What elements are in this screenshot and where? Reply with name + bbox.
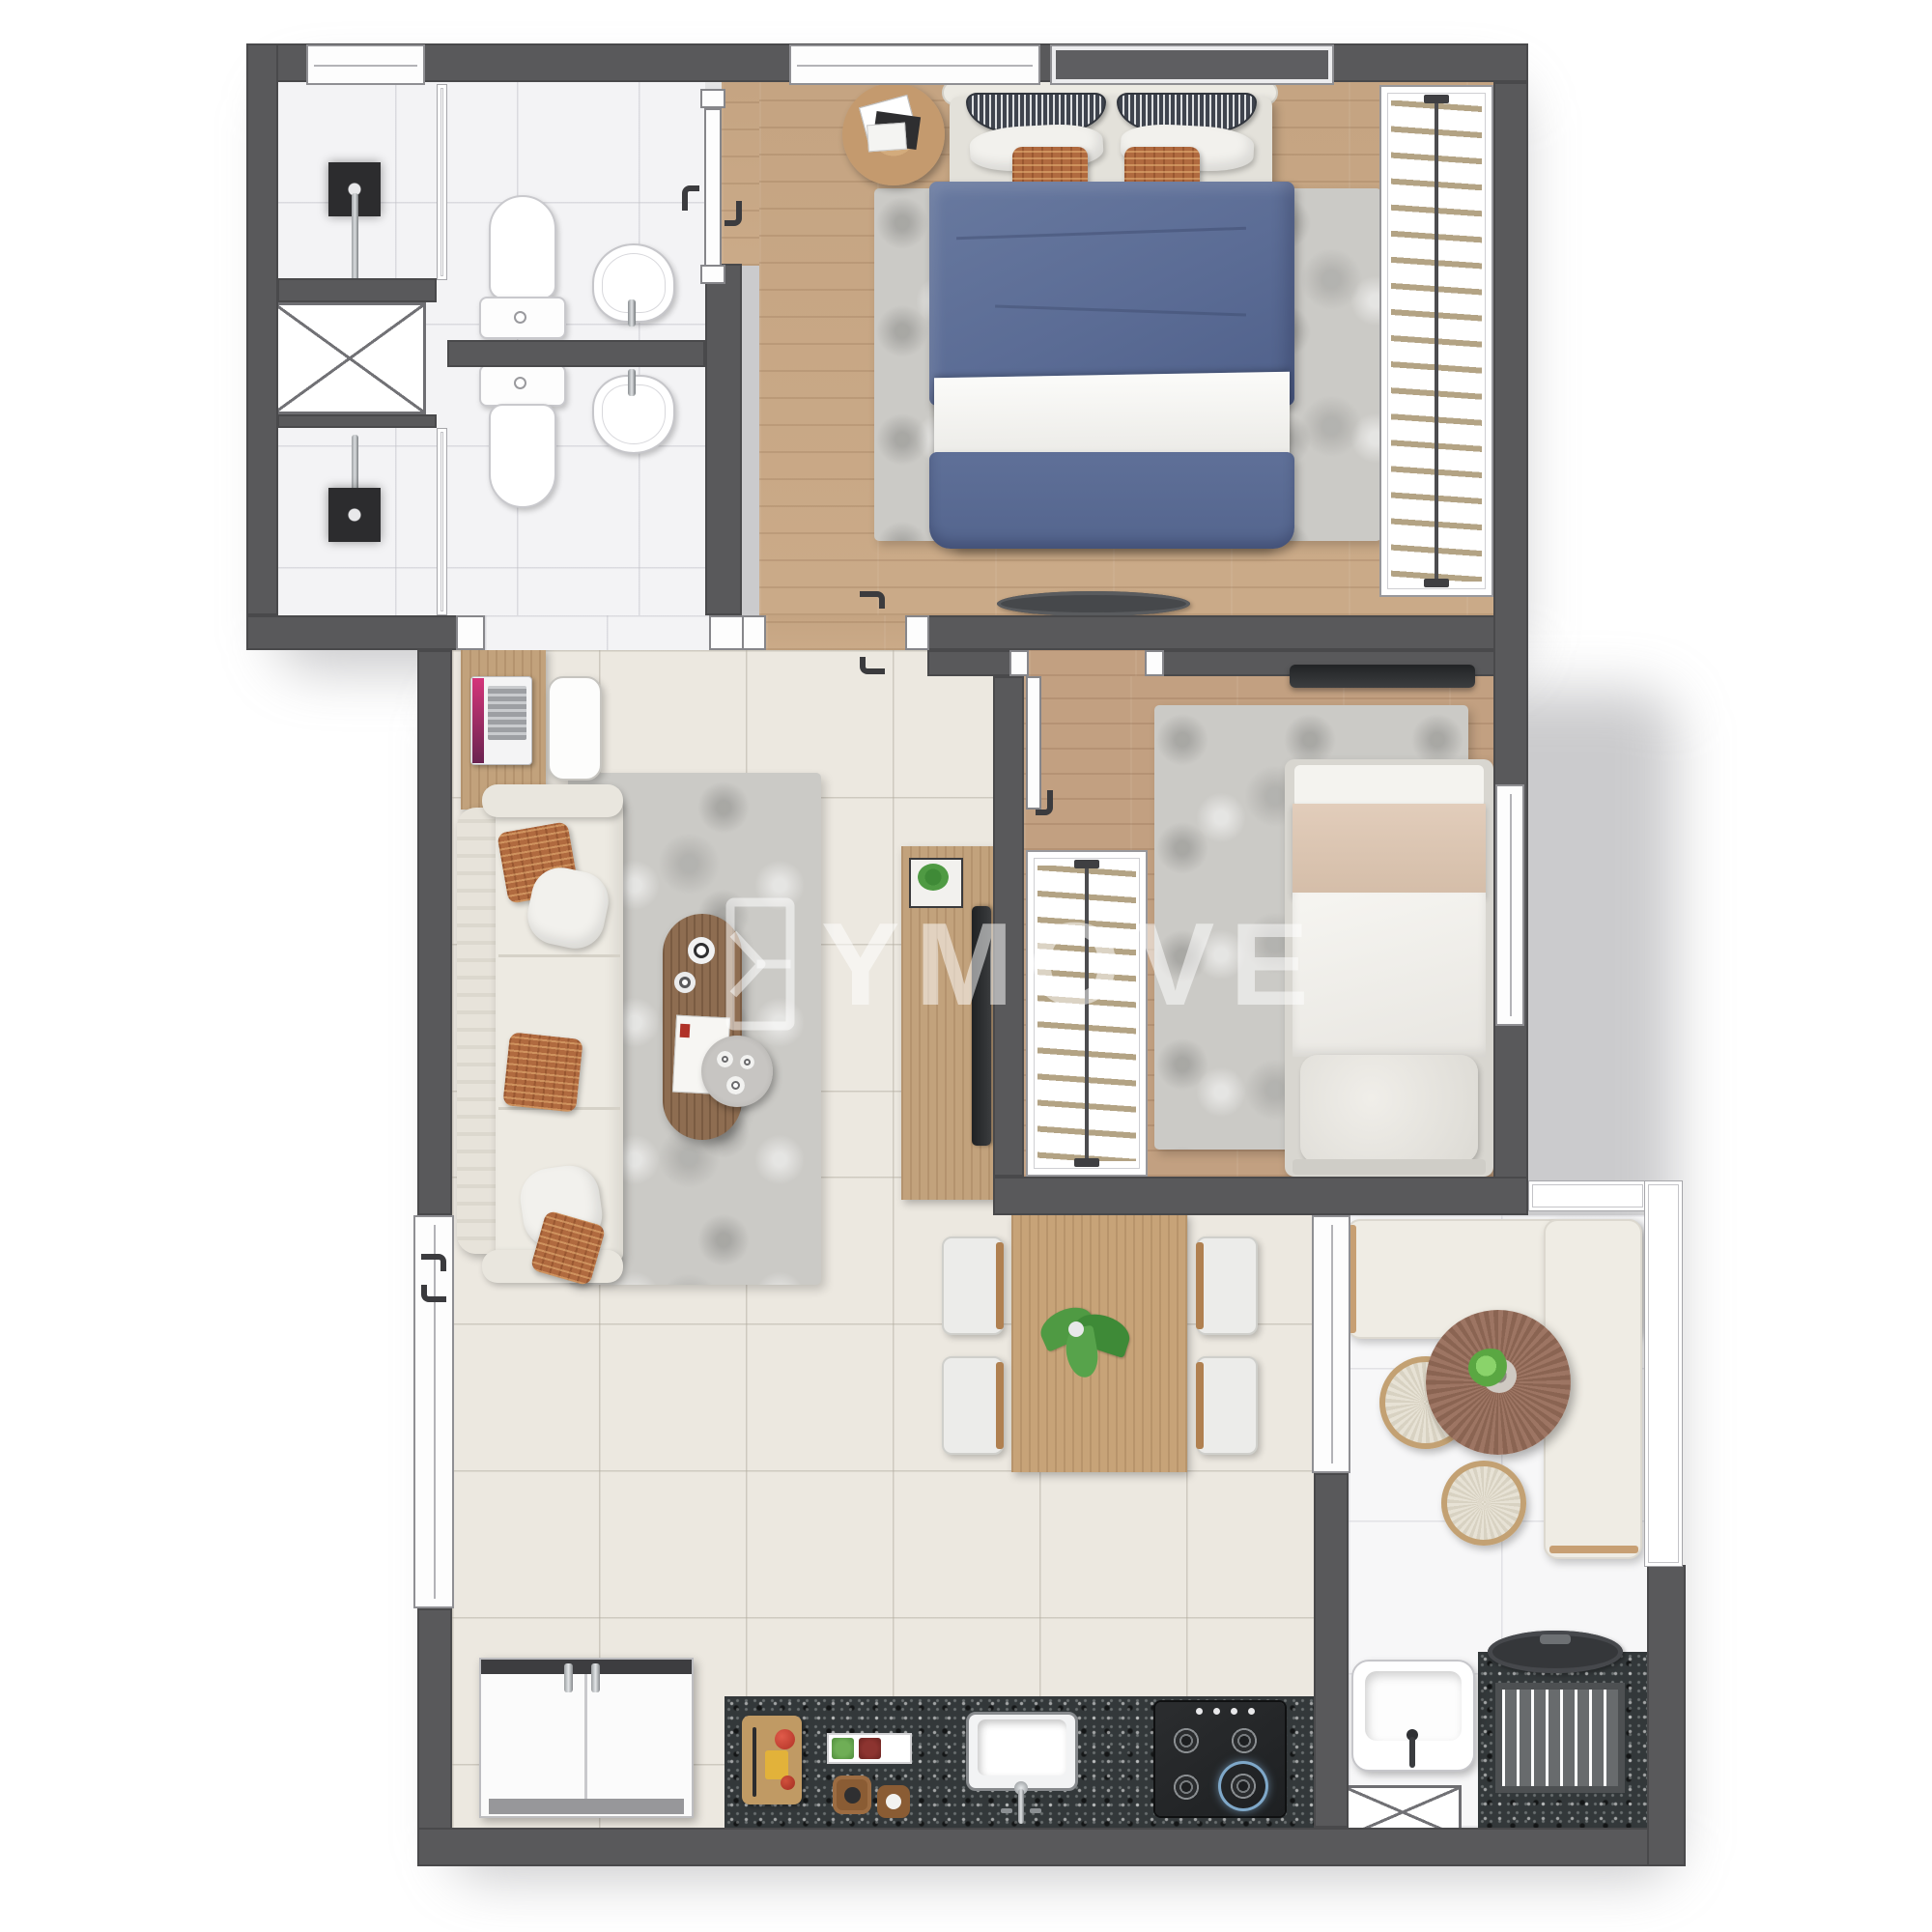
chair-wood-trim	[996, 1242, 1004, 1329]
tomato	[775, 1729, 795, 1749]
shower-glass-partition	[437, 84, 447, 280]
laptop-screen-accent	[472, 678, 484, 763]
wall-bedroom2-bottom	[993, 1177, 1528, 1215]
wardrobe-rod-cap	[1424, 95, 1449, 103]
door-handle	[682, 185, 699, 211]
kitchen-sink-basin	[978, 1719, 1066, 1776]
watermark-text: YMOVE	[821, 905, 1324, 1023]
bed2-footboard	[1293, 1159, 1486, 1175]
door-frame	[700, 89, 725, 108]
door-frame	[456, 615, 485, 650]
door-frame	[1009, 650, 1029, 676]
dining-plant-vase	[1068, 1321, 1084, 1337]
window-bedroom2	[1495, 784, 1524, 1026]
stove-burner-large	[1221, 1764, 1265, 1808]
candle	[740, 1055, 754, 1069]
fridge-door-split	[584, 1674, 587, 1802]
door-frame	[709, 615, 744, 650]
bench-wood-trim	[1549, 1546, 1638, 1553]
wall-left-bathrooms	[246, 43, 278, 615]
cup	[674, 972, 696, 993]
dining-chair	[942, 1236, 1004, 1335]
knife	[753, 1727, 756, 1797]
duvet-blue-foot	[929, 452, 1294, 549]
faucet-handle	[1030, 1808, 1041, 1813]
faucet-handle	[1001, 1808, 1012, 1813]
sofa-armrest	[482, 784, 623, 817]
balcony-railing-right	[1644, 1180, 1683, 1567]
table-plant	[1468, 1349, 1513, 1387]
magazine	[867, 123, 907, 153]
toilet-bowl	[489, 404, 556, 508]
toilet-flush-button	[514, 377, 526, 389]
window-master-bedroom	[789, 44, 1040, 85]
door-handle	[421, 1254, 446, 1271]
fridge-handle	[591, 1663, 600, 1692]
shower-glass-partition	[437, 428, 447, 615]
doorway-bathroom	[485, 615, 709, 650]
wardrobe-rod-cap	[1074, 860, 1099, 868]
chair-wood-trim	[996, 1362, 1004, 1449]
console-plant	[918, 864, 949, 891]
balcony-railing-top	[1528, 1180, 1647, 1211]
stove-knob	[1213, 1708, 1220, 1715]
master-wardrobe	[1379, 85, 1493, 597]
window-master-bedroom-shaded	[1052, 46, 1332, 83]
bed2-sheet	[1294, 765, 1484, 808]
door-handle	[724, 201, 742, 226]
laundry-faucet-spout	[1409, 1737, 1415, 1768]
stove-burner	[1169, 1723, 1204, 1758]
floor-plan-canvas: YMOVE	[0, 0, 1932, 1932]
lounge-chair	[548, 676, 602, 781]
wall-bottom	[417, 1828, 1686, 1866]
ensuite-nook-floor	[722, 80, 759, 266]
washing-machine-vents	[1495, 1683, 1625, 1793]
wall-bathrooms-divider	[447, 340, 705, 367]
window-bathroom	[306, 44, 425, 85]
jar-lid	[886, 1794, 901, 1809]
jar-lid	[844, 1787, 861, 1804]
shower-bar	[352, 193, 358, 282]
door-handle	[860, 657, 885, 674]
spice-red	[859, 1738, 881, 1759]
fridge-base	[489, 1799, 684, 1814]
faucet	[628, 299, 636, 327]
wall-service-divider	[1314, 1473, 1349, 1828]
dining-chair	[1196, 1236, 1258, 1335]
service-shaft	[273, 302, 426, 414]
toilet-bowl	[489, 195, 556, 299]
laptop-keyboard	[488, 686, 526, 740]
stove-knob	[1231, 1708, 1237, 1715]
stove-knob	[1248, 1708, 1255, 1715]
bedroom2-wall-tv	[1290, 665, 1475, 688]
washer-lid-handle	[1540, 1634, 1571, 1644]
door-handle	[421, 1285, 446, 1302]
tray-side-table	[701, 1036, 773, 1107]
bed2-pillow	[1300, 1055, 1478, 1163]
door-frame	[700, 265, 725, 284]
tv-bench	[997, 591, 1190, 616]
wall-right	[1493, 82, 1528, 1215]
wall	[277, 278, 437, 302]
door-handle	[1036, 790, 1053, 815]
sofa-back	[457, 808, 497, 1254]
door-handle	[860, 591, 885, 609]
faucet	[628, 369, 636, 396]
wall-bath-bedroom-divider	[705, 264, 742, 615]
chair-wood-trim	[1196, 1362, 1204, 1449]
stove-knob	[1196, 1708, 1203, 1715]
door-leaf-ensuite	[704, 108, 722, 270]
wall-service-right	[1647, 1565, 1686, 1866]
herbs	[832, 1738, 854, 1759]
dining-chair	[1196, 1356, 1258, 1455]
wardrobe-rod	[1435, 95, 1438, 587]
stove-burner	[1169, 1770, 1204, 1804]
wall	[277, 414, 437, 428]
ymove-logo-icon	[724, 896, 796, 1032]
sliding-door-balcony	[1312, 1215, 1350, 1473]
candle	[717, 1051, 733, 1067]
door-frame	[742, 615, 766, 650]
door-frame	[905, 615, 929, 650]
sofa-seat-seam	[498, 954, 620, 957]
doorway-master-bedroom	[766, 615, 905, 650]
wardrobe-rod-cap	[1074, 1158, 1099, 1167]
toilet-flush-button	[514, 311, 526, 324]
wall-living-left	[417, 650, 452, 1215]
window-door-living	[413, 1215, 454, 1608]
wardrobe-rod-cap	[1424, 579, 1449, 587]
chair-wood-trim	[1196, 1242, 1204, 1329]
dining-chair	[942, 1356, 1004, 1455]
pepper	[781, 1776, 795, 1790]
bed2-blanket-beige	[1293, 804, 1486, 896]
watermark: YMOVE	[724, 896, 1324, 1032]
shower-head	[328, 488, 381, 542]
faucet-spout	[1018, 1789, 1024, 1824]
doorway-bedroom2	[1029, 650, 1145, 676]
stove-burner	[1227, 1723, 1262, 1758]
fridge-top-trim	[481, 1660, 692, 1674]
door-frame	[1145, 650, 1164, 676]
candle	[726, 1076, 745, 1094]
balcony-pouf	[1441, 1461, 1526, 1546]
magazine-accent	[680, 1024, 691, 1038]
sofa-pillow-terracotta	[502, 1032, 583, 1113]
cup	[688, 937, 715, 964]
shower-bar	[352, 435, 358, 493]
fridge-handle	[564, 1663, 573, 1692]
